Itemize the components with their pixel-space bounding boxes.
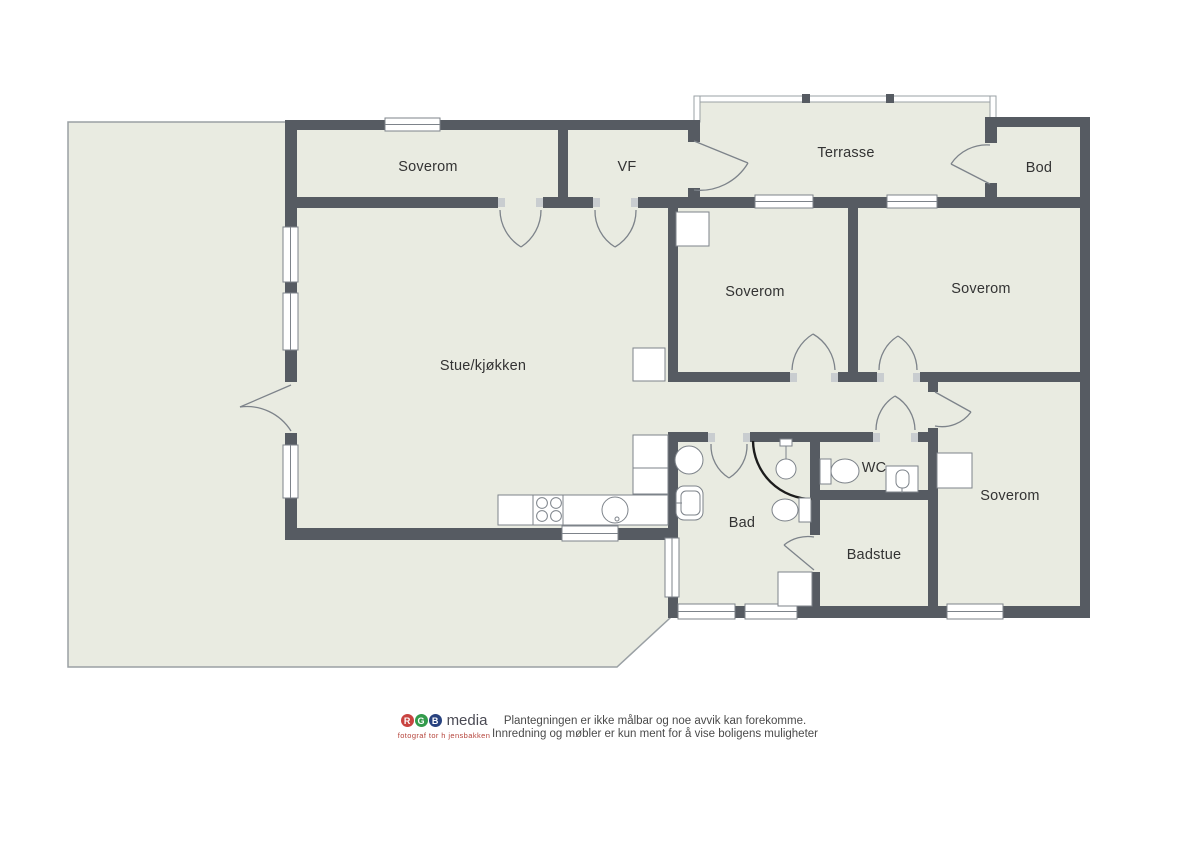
room-label-soverom-bottom-right: Soverom: [980, 488, 1039, 504]
wall-segment: [285, 350, 297, 382]
wall-segment: [838, 372, 877, 382]
window: [283, 293, 298, 350]
wall-segment: [985, 117, 1090, 127]
kitchen-cabinet-icon: [633, 348, 665, 381]
window: [283, 445, 298, 498]
room-label-bod: Bod: [1026, 160, 1052, 176]
wall-segment: [920, 372, 1090, 382]
window: [562, 526, 618, 541]
wall-segment: [810, 432, 820, 497]
jamb: [913, 373, 920, 382]
wc-sink-icon: [886, 466, 918, 493]
wall-segment: [1080, 117, 1090, 618]
wall-segment: [668, 372, 790, 382]
floor-plan-page: Soverom VF Terrasse Bod Soverom Soverom …: [0, 0, 1200, 848]
pedestal-sink-icon: [676, 486, 703, 520]
wall-segment: [848, 201, 858, 382]
wall-segment: [810, 490, 938, 500]
room-label-terrasse: Terrasse: [817, 145, 874, 161]
jamb: [911, 433, 918, 442]
railing-tick: [802, 94, 810, 103]
disclaimer-line-2: Innredning og møbler er kun ment for å v…: [455, 728, 855, 741]
jamb: [873, 433, 880, 442]
wall-segment: [667, 197, 755, 208]
window: [947, 604, 1003, 619]
logo-circle-r-icon: R: [401, 714, 414, 727]
wall-segment: [918, 432, 938, 442]
wall-segment: [285, 433, 297, 445]
window: [755, 195, 813, 208]
room-floor-top-section: [285, 120, 700, 210]
jamb: [593, 198, 600, 207]
wall-segment: [668, 432, 708, 442]
disclaimer-text: Plantegningen er ikke målbar og noe avvi…: [455, 715, 855, 741]
window: [887, 195, 937, 208]
toilet-icon: [820, 459, 859, 484]
room-label-badstue: Badstue: [847, 547, 902, 563]
jamb: [498, 198, 505, 207]
room-label-soverom-mid-left: Soverom: [725, 284, 784, 300]
wall-segment: [285, 498, 297, 533]
room-label-wc: WC: [862, 460, 887, 476]
logo-circle-g-icon: G: [415, 714, 428, 727]
closet-icon: [676, 212, 709, 246]
wall-segment: [285, 120, 297, 227]
window: [283, 227, 298, 282]
jamb: [631, 198, 638, 207]
railing-right-post: [990, 96, 996, 119]
jamb: [877, 373, 884, 382]
room-label-vf: VF: [618, 159, 637, 175]
railing-tick: [886, 94, 894, 103]
jamb: [790, 373, 797, 382]
wall-segment: [937, 197, 1090, 208]
wall-segment: [285, 282, 297, 293]
wardrobe-icon: [937, 453, 972, 488]
room-label-soverom-top-left: Soverom: [398, 159, 457, 175]
bath-bench-icon: [778, 572, 812, 606]
wall-segment: [688, 120, 700, 142]
railing-left-post: [694, 96, 700, 122]
room-label-soverom-mid-right: Soverom: [951, 281, 1010, 297]
wall-segment: [668, 433, 678, 538]
wall-segment: [543, 197, 593, 208]
wall-segment: [290, 197, 498, 208]
room-label-stue-kjokken: Stue/kjøkken: [440, 358, 526, 374]
window: [385, 118, 440, 131]
jamb: [536, 198, 543, 207]
logo-circle-b-icon: B: [429, 714, 442, 727]
jamb: [831, 373, 838, 382]
disclaimer-line-1: Plantegningen er ikke målbar og noe avvi…: [455, 715, 855, 728]
wall-segment: [285, 120, 700, 130]
room-label-bad: Bad: [729, 515, 755, 531]
wall-segment: [928, 380, 938, 392]
wall-segment: [985, 117, 997, 143]
wall-segment: [558, 128, 568, 208]
bathroom-sink-icon: [675, 446, 703, 474]
jamb: [708, 433, 715, 442]
window: [665, 538, 679, 597]
toilet-icon: [772, 498, 811, 522]
kitchen-sink-icon: [602, 497, 628, 523]
window: [678, 604, 735, 619]
jamb: [743, 433, 750, 442]
railing-top: [694, 96, 996, 102]
